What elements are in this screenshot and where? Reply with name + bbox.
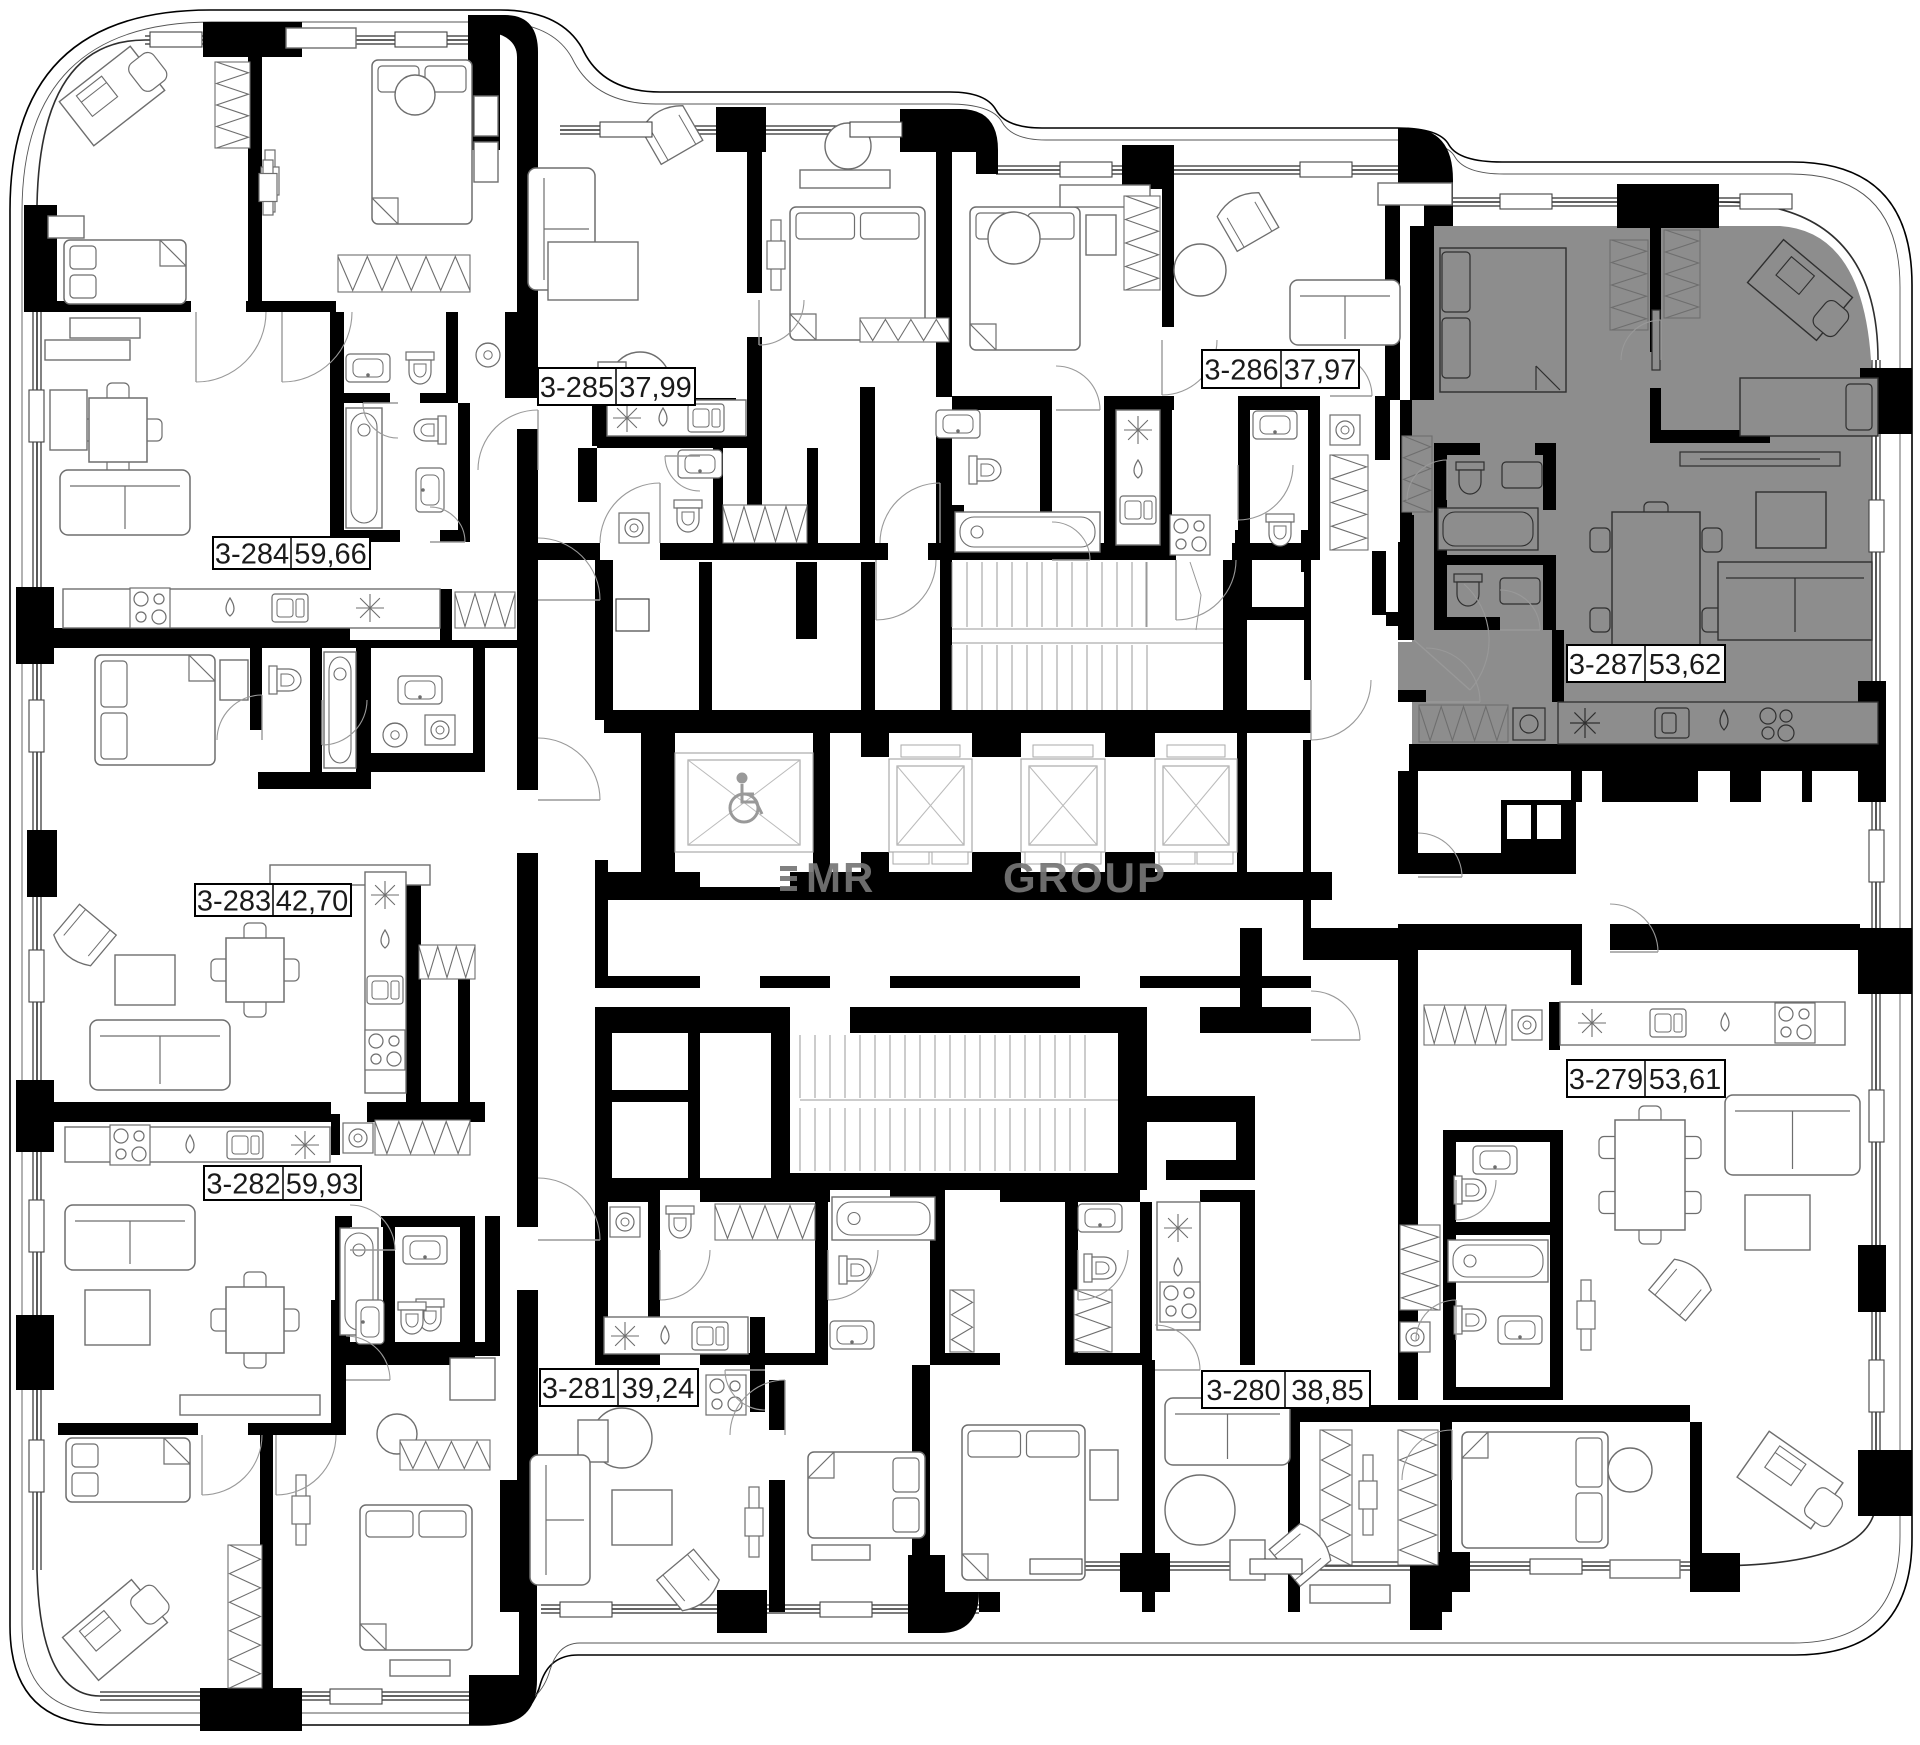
svg-text:53,61: 53,61 (1649, 1064, 1722, 1096)
svg-text:38,85: 38,85 (1291, 1375, 1364, 1407)
svg-text:3-279: 3-279 (1569, 1064, 1643, 1096)
svg-text:3-287: 3-287 (1569, 649, 1643, 681)
svg-text:53,62: 53,62 (1649, 649, 1722, 681)
svg-text:3-283: 3-283 (197, 886, 271, 918)
svg-text:3-281: 3-281 (542, 1373, 616, 1405)
svg-text:37,99: 37,99 (619, 372, 692, 404)
svg-text:3-285: 3-285 (540, 372, 614, 404)
svg-text:3-284: 3-284 (215, 539, 289, 571)
svg-text:59,66: 59,66 (294, 539, 367, 571)
svg-text:3-280: 3-280 (1206, 1375, 1280, 1407)
svg-text:GROUP: GROUP (1003, 854, 1167, 901)
svg-text:37,97: 37,97 (1284, 355, 1357, 387)
svg-text:39,24: 39,24 (622, 1373, 695, 1405)
svg-text:3-282: 3-282 (206, 1169, 280, 1201)
svg-text:59,93: 59,93 (286, 1169, 359, 1201)
svg-text:42,70: 42,70 (276, 886, 349, 918)
svg-text:MR: MR (806, 854, 875, 901)
svg-text:3-286: 3-286 (1204, 355, 1278, 387)
